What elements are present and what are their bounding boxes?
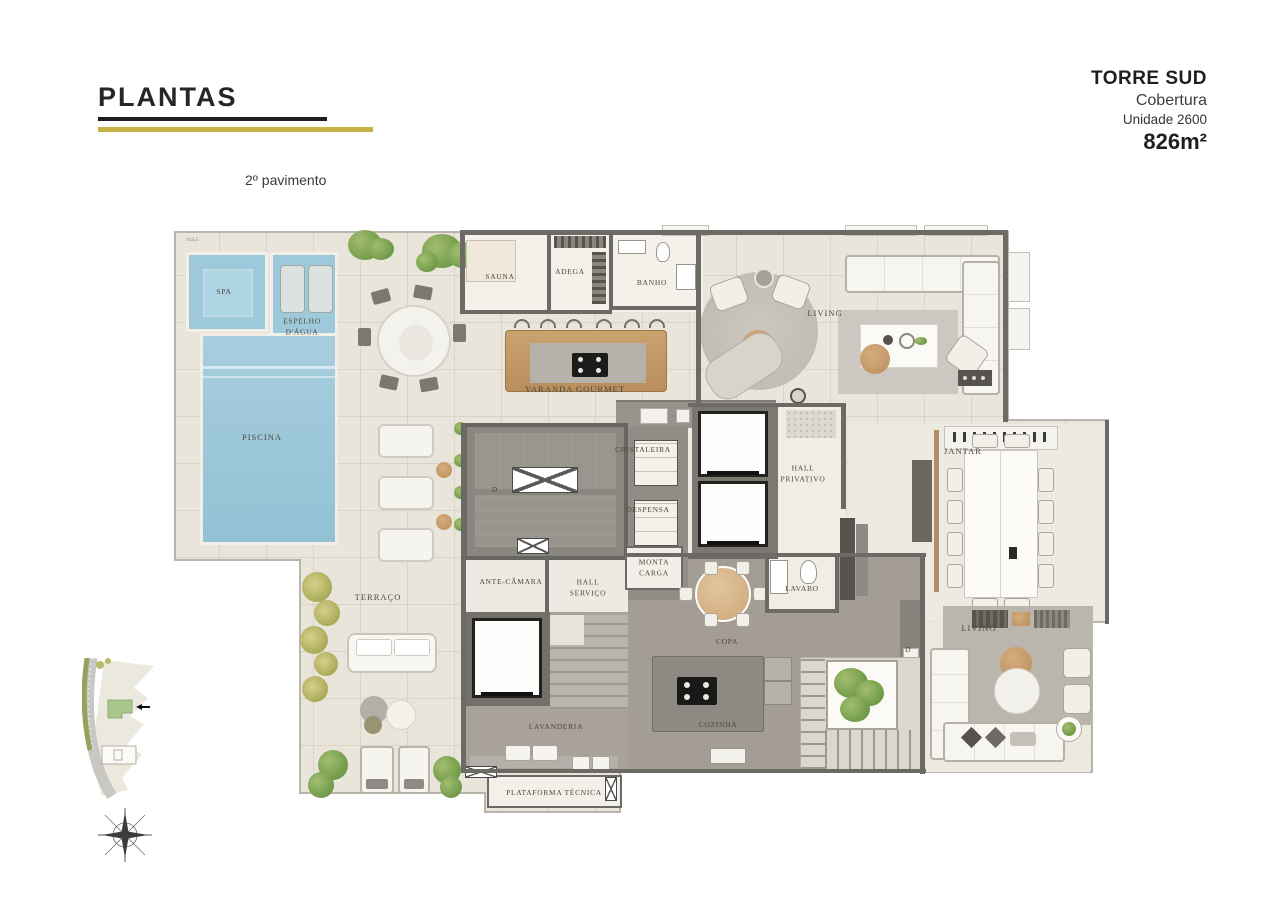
wall-segment bbox=[688, 403, 846, 407]
lounger bbox=[360, 746, 394, 794]
room-label-adega: ADEGA bbox=[555, 267, 585, 278]
wall-segment bbox=[461, 423, 466, 773]
elevator bbox=[698, 481, 768, 547]
side-table bbox=[754, 268, 774, 288]
page-title: PLANTAS bbox=[98, 82, 238, 113]
cooktop bbox=[677, 677, 717, 705]
site-tree bbox=[96, 661, 104, 669]
wine-rack bbox=[592, 252, 606, 304]
laundry-tub bbox=[592, 756, 610, 770]
outdoor-chair bbox=[358, 328, 371, 346]
room-label-monta-carga: MONTA CARGA bbox=[639, 558, 669, 579]
wall-segment bbox=[1105, 420, 1109, 624]
laundry-tub bbox=[572, 756, 590, 770]
outdoor-chair bbox=[453, 324, 466, 342]
lounger-frame bbox=[366, 779, 388, 789]
room-label-piscina: PISCINA bbox=[242, 432, 282, 444]
unit-info-block: TORRE SUD Cobertura Unidade 2600 826m² bbox=[960, 68, 1207, 155]
gourmet-island bbox=[505, 330, 667, 392]
wall-segment bbox=[463, 769, 926, 773]
buffet-cabinet bbox=[912, 460, 932, 542]
console-knob bbox=[972, 376, 976, 380]
hatch-panel bbox=[605, 777, 617, 801]
plant-table bbox=[1056, 716, 1082, 742]
stair-planter bbox=[826, 660, 898, 730]
copa-chair bbox=[704, 613, 718, 627]
dining-chair bbox=[1004, 434, 1030, 448]
water-lounger bbox=[280, 265, 305, 313]
doormat bbox=[786, 410, 836, 438]
room-label-spa: SPA bbox=[216, 287, 231, 298]
bar-stool bbox=[596, 319, 612, 328]
burner bbox=[596, 368, 601, 373]
wall-segment bbox=[460, 230, 1008, 235]
console-knob bbox=[981, 376, 985, 380]
tree bbox=[368, 238, 394, 260]
pool-lane-line bbox=[203, 376, 335, 378]
unit-number: Unidade 2600 bbox=[960, 112, 1207, 127]
hatch-panel bbox=[517, 538, 549, 554]
burner bbox=[684, 682, 690, 688]
outdoor-dining-table bbox=[377, 305, 451, 377]
wall-segment bbox=[696, 230, 701, 407]
coffee-table bbox=[386, 700, 416, 730]
table-decor bbox=[899, 333, 915, 349]
stair-landing bbox=[550, 615, 584, 645]
burner bbox=[596, 357, 601, 362]
refrigerator bbox=[764, 681, 792, 705]
wall-segment bbox=[688, 555, 778, 559]
pouf bbox=[364, 716, 382, 734]
room-label-plataforma-tecnica: PLATAFORMA TÉCNICA bbox=[506, 788, 602, 799]
water-lounger bbox=[308, 265, 333, 313]
stair-treads bbox=[825, 730, 923, 769]
wall-segment bbox=[545, 555, 549, 613]
refrigerator bbox=[764, 657, 792, 681]
media-console bbox=[958, 370, 992, 386]
toilet bbox=[800, 560, 817, 584]
counter-appliance bbox=[676, 409, 690, 423]
room-label-jantar: JANTAR bbox=[944, 446, 982, 458]
room-label-copa: COPA bbox=[716, 637, 738, 648]
service-elevator bbox=[472, 618, 542, 698]
counter-sink bbox=[640, 408, 668, 424]
site-building-outline bbox=[102, 746, 136, 764]
sun-lounger bbox=[378, 476, 434, 510]
burner bbox=[578, 368, 583, 373]
copa-chair bbox=[736, 561, 750, 575]
burner bbox=[684, 694, 690, 700]
room-label-banho: BANHO bbox=[637, 278, 667, 289]
armchair bbox=[1063, 648, 1091, 678]
room-label-living-inferior: LIVING bbox=[961, 623, 996, 635]
table-decor bbox=[883, 335, 893, 345]
console-shelf bbox=[1012, 612, 1030, 626]
bar-stool bbox=[649, 319, 665, 328]
pouf bbox=[860, 344, 890, 374]
table-plant bbox=[915, 337, 927, 345]
plant bbox=[1062, 722, 1076, 736]
unit-area: 826m² bbox=[960, 129, 1207, 155]
dining-chair bbox=[947, 500, 963, 524]
room-label-lavanderia: LAVANDERIA bbox=[529, 722, 583, 733]
wall-segment bbox=[765, 553, 769, 613]
room-label-varanda-gourmet: VARANDA GOURMET bbox=[525, 384, 625, 396]
wall-segment bbox=[609, 230, 613, 310]
room-label-cozinha: COZINHA bbox=[699, 720, 738, 731]
toilet bbox=[656, 242, 670, 262]
room-label-terraco: TERRAÇO bbox=[355, 592, 402, 604]
floor-plan: SPA ESPELHO D'ÁGUA PISCINA SAUNA ADEGA B… bbox=[172, 228, 1112, 816]
cushion bbox=[1010, 732, 1036, 746]
wall-segment bbox=[765, 609, 839, 613]
table-top bbox=[399, 325, 433, 361]
dining-chair bbox=[947, 532, 963, 556]
cooktop bbox=[572, 353, 608, 377]
console-knob bbox=[963, 376, 967, 380]
title-underline-gold bbox=[98, 127, 373, 132]
tower-name: TORRE SUD bbox=[960, 68, 1207, 90]
wall-segment bbox=[460, 230, 465, 314]
tall-cabinet bbox=[856, 524, 868, 596]
site-key-map bbox=[82, 658, 174, 800]
room-label-espelho-dagua: ESPELHO D'ÁGUA bbox=[283, 317, 321, 338]
compass-rose bbox=[96, 806, 154, 864]
copa-chair bbox=[704, 561, 718, 575]
bath-sink bbox=[618, 240, 646, 254]
dining-chair bbox=[947, 468, 963, 492]
wine-rack bbox=[554, 236, 606, 248]
double-sink bbox=[710, 748, 746, 764]
burner bbox=[703, 694, 709, 700]
wood-panel bbox=[934, 430, 939, 592]
unit-type: Cobertura bbox=[960, 92, 1207, 110]
tall-cabinet bbox=[840, 518, 855, 600]
room-label-cristaleira: CRISTALEIRA bbox=[615, 445, 671, 456]
palm-plant bbox=[302, 572, 332, 602]
room-label-sauna: SAUNA bbox=[485, 272, 514, 283]
service-stair bbox=[550, 615, 628, 709]
room-label-ante-camara: ANTE-CÂMARA bbox=[479, 577, 542, 588]
sideboard bbox=[1034, 610, 1070, 628]
bar-stool bbox=[566, 319, 582, 328]
page: { "header": { "title": "PLANTAS", "floor… bbox=[0, 0, 1280, 921]
bar-stool bbox=[514, 319, 530, 328]
door-marker: D bbox=[905, 645, 911, 656]
title-underline-black bbox=[98, 117, 327, 121]
glassware bbox=[953, 432, 1049, 442]
elevator-door bbox=[707, 471, 758, 475]
balcony-unit bbox=[1008, 252, 1030, 302]
shower bbox=[676, 264, 696, 290]
burner bbox=[578, 357, 583, 362]
copa-chair bbox=[736, 613, 750, 627]
floor-lamp bbox=[790, 388, 806, 404]
palm-plant bbox=[300, 626, 328, 654]
washing-machine bbox=[505, 745, 531, 761]
pool-lane-line bbox=[203, 366, 335, 369]
dimension-label: 914,5 bbox=[186, 237, 198, 243]
side-table bbox=[436, 514, 452, 530]
pillow bbox=[394, 639, 430, 656]
grand-stair bbox=[800, 657, 924, 770]
wall-segment bbox=[460, 310, 612, 314]
sun-lounger bbox=[378, 528, 434, 562]
burner bbox=[703, 682, 709, 688]
wall-segment bbox=[841, 403, 846, 509]
round-rug-small bbox=[994, 668, 1040, 714]
pillow bbox=[356, 639, 392, 656]
balcony-unit bbox=[1008, 308, 1030, 350]
room-label-despensa: DESPENSA bbox=[626, 505, 670, 516]
palm-plant bbox=[314, 600, 340, 626]
elevator bbox=[698, 411, 768, 477]
armchair bbox=[1063, 684, 1091, 714]
dining-table bbox=[964, 450, 1038, 598]
site-arrow-tail bbox=[142, 706, 150, 708]
table-seam bbox=[1000, 451, 1001, 597]
door-marker: D bbox=[492, 485, 498, 496]
daybed bbox=[347, 633, 437, 673]
room-label-lavabo: LAVABO bbox=[785, 584, 819, 595]
planter-plant bbox=[840, 696, 870, 722]
sofa-l-horizontal bbox=[943, 722, 1065, 762]
stair-treads bbox=[801, 658, 825, 769]
room-label-hall-servico: HALL SERVIÇO bbox=[570, 578, 606, 599]
wall-segment bbox=[835, 553, 839, 613]
elevator-door bbox=[481, 692, 532, 696]
dining-chair bbox=[1038, 500, 1054, 524]
palm-plant bbox=[302, 676, 328, 702]
lounger-frame bbox=[404, 779, 424, 789]
site-tree bbox=[105, 658, 111, 664]
wall-segment bbox=[1003, 230, 1008, 422]
sun-lounger bbox=[378, 424, 434, 458]
side-table bbox=[436, 462, 452, 478]
stair-landing-hatch bbox=[512, 467, 578, 493]
washing-machine bbox=[532, 745, 558, 761]
floor-label: 2º pavimento bbox=[245, 172, 326, 188]
dining-chair bbox=[1038, 532, 1054, 556]
bush bbox=[308, 772, 334, 798]
wall-segment bbox=[609, 306, 701, 310]
tree bbox=[416, 252, 438, 272]
wall-segment bbox=[547, 230, 551, 314]
wall-segment bbox=[920, 553, 925, 774]
palm-plant bbox=[314, 652, 338, 676]
bar-stool bbox=[624, 319, 640, 328]
dining-chair bbox=[1038, 468, 1054, 492]
elevator-door bbox=[707, 541, 758, 545]
bar-stool bbox=[540, 319, 556, 328]
dining-chair bbox=[947, 564, 963, 588]
dining-chair bbox=[1038, 564, 1054, 588]
room-label-living-superior: LIVING bbox=[807, 308, 842, 320]
table-decor bbox=[1009, 547, 1017, 559]
room-label-hall-privativo: HALL PRIVATIVO bbox=[781, 464, 826, 485]
copa-chair bbox=[679, 587, 693, 601]
lounger bbox=[398, 746, 430, 794]
bush bbox=[440, 776, 462, 798]
